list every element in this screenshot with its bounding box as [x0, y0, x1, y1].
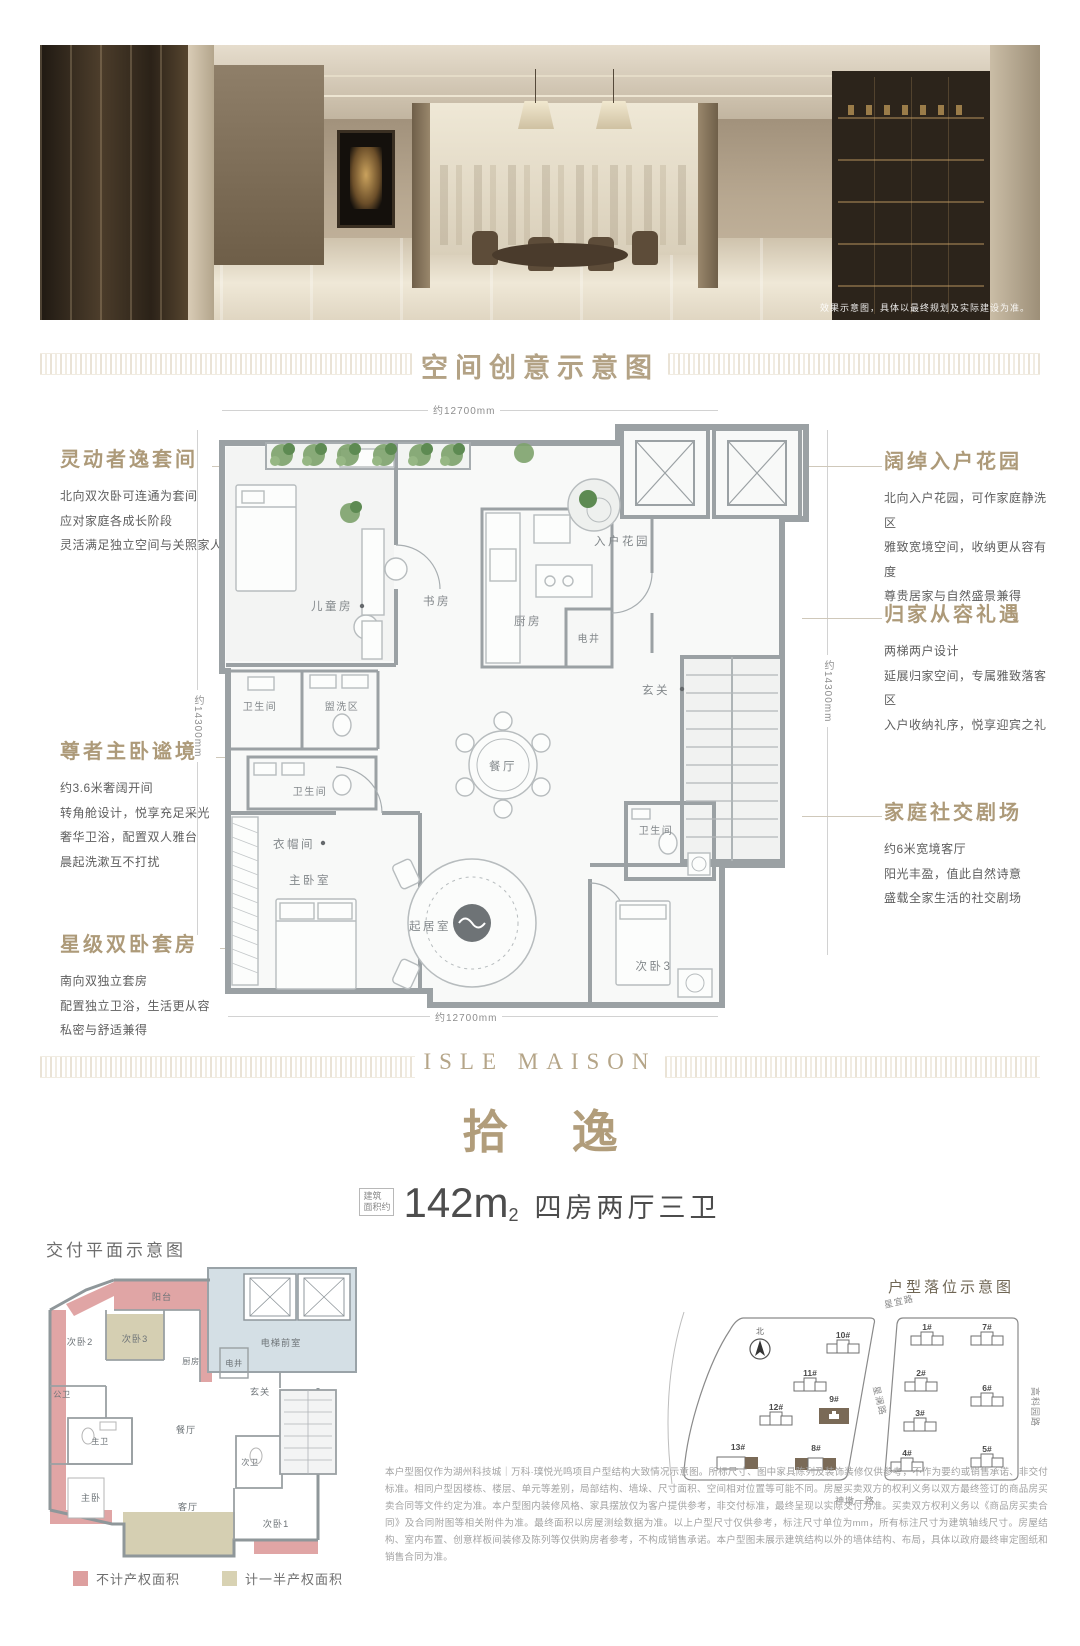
room-label-bath1: 卫生间 [243, 700, 278, 713]
dining-chair [472, 231, 498, 265]
room-label-foyer: 玄关 [642, 683, 670, 697]
annotation-homecoming: 归家从容礼遇 两梯两户设计 延展归家空间，专属雅致落客区 入户收纳礼序，悦享迎宾… [884, 598, 1054, 737]
svg-text:6#: 6# [982, 1383, 992, 1393]
d-label-bed1: 次卧1 [263, 1518, 290, 1529]
delivery-legend: 不计产权面积 计一半产权面积 [73, 1569, 343, 1588]
svg-text:2#: 2# [916, 1368, 926, 1378]
road-right: 高科园路 [1030, 1387, 1041, 1427]
disclaimer: 本户型图仅作为湖州科技城｜万科·璞悦光鸣项目户型结构大致情况示意图。所标尺寸、图… [385, 1464, 1048, 1567]
d-label-foyer: 玄关 [250, 1386, 270, 1397]
room-label-cloak: 衣帽间 [273, 837, 315, 851]
room-label-bath2: 卫生间 [293, 785, 328, 798]
dining-table [492, 243, 628, 267]
room-label-master: 主卧室 [289, 873, 331, 887]
d-label-shaft: 电井 [225, 1358, 242, 1368]
dining-chair [632, 231, 658, 265]
photo-artwork [340, 133, 392, 225]
room-label-bed3: 次卧3 [636, 959, 673, 973]
delivery-plan: 阳台 次卧2 次卧3 厨房 电井 电梯前室 玄关 公卫 主卫 餐厅 主卧 客厅 … [28, 1258, 363, 1563]
d-label-kitchen: 厨房 [182, 1356, 199, 1366]
annotation-entry-garden: 阔绰入户花园 北向入户花园，可作家庭静洗区 雅致宽境空间，收纳更从容有度 尊贵居… [884, 445, 1054, 609]
svg-text:4#: 4# [902, 1448, 912, 1458]
west-road [668, 1312, 684, 1484]
legend-swatch-tan [222, 1571, 237, 1586]
room-label-dining: 餐厅 [489, 759, 517, 773]
svg-text:8#: 8# [811, 1443, 821, 1453]
photo-caption: 效果示意图，具体以最终规划及实际建设为准。 [820, 301, 1030, 314]
d-label-master: 主卧 [81, 1492, 101, 1503]
north-arrow-icon: 北 [750, 1327, 770, 1359]
svg-text:7#: 7# [982, 1322, 992, 1332]
room-label-study: 书房 [423, 595, 451, 608]
d-label-bed2: 次卧2 [67, 1336, 94, 1347]
photo-wood-panel-wall [40, 45, 188, 320]
room-label-children: 儿童房 [311, 599, 353, 613]
legend-swatch-pink [73, 1571, 88, 1586]
room-label-bath3: 卫生间 [639, 824, 674, 837]
room-label-living: 起居室 [409, 919, 451, 933]
road-top: 星宜路 [883, 1292, 915, 1309]
d-label-bed3: 次卧3 [122, 1333, 149, 1344]
svg-text:10#: 10# [836, 1330, 850, 1340]
d-label-master-bath: 主卫 [91, 1436, 108, 1446]
svg-text:13#: 13# [731, 1442, 745, 1452]
hero-photo: 效果示意图，具体以最终规划及实际建设为准。 [40, 45, 1040, 320]
area-value: 142m [403, 1182, 508, 1224]
d-label-living: 客厅 [178, 1501, 198, 1512]
legend-item: 不计产权面积 [73, 1569, 180, 1588]
svg-text:北: 北 [756, 1327, 764, 1336]
unit-name: 拾 逸 [0, 1096, 1080, 1162]
building-9-highlight [819, 1408, 849, 1424]
room-label-shaft: 电井 [578, 632, 601, 645]
main-floorplan: 儿童房 书房 厨房 电井 入户花园 玄关 卫生间 盥洗区 卫生间 餐厅 卫生间 … [190, 413, 835, 1025]
area-prefix: 建筑 面积约 [359, 1188, 394, 1217]
svg-text:1#: 1# [922, 1322, 932, 1332]
svg-text:3#: 3# [915, 1408, 925, 1418]
svg-text:5#: 5# [982, 1444, 992, 1454]
d-label-dining: 餐厅 [176, 1424, 196, 1435]
svg-text:12#: 12# [769, 1402, 783, 1412]
d-label-sec-bath: 次卫 [241, 1457, 258, 1467]
svg-text:9#: 9# [829, 1394, 839, 1404]
room-label-wash: 盥洗区 [325, 701, 360, 713]
svg-text:11#: 11# [803, 1368, 817, 1378]
area-sup: 2 [509, 1206, 519, 1224]
brochure-page: 效果示意图，具体以最终规划及实际建设为准。 空间创意示意图 约12700mm 约… [0, 0, 1080, 1646]
d-label-pub-bath: 公卫 [53, 1390, 70, 1399]
d-label-lobby: 电梯前室 [261, 1337, 302, 1348]
legend-item: 计一半产权面积 [222, 1569, 343, 1588]
road-middle: 星澜路 [871, 1385, 889, 1417]
annotation-social-living: 家庭社交剧场 约6米宽境客厅 阳光丰盈，值此自然诗意 盛载全家生活的社交剧场 [884, 796, 1054, 911]
area-row: 建筑 面积约 142m2 四房两厅三卫 [0, 1182, 1080, 1224]
room-label-kitchen: 厨房 [514, 615, 542, 628]
room-label-garden: 入户花园 [594, 534, 650, 548]
d-label-balcony: 阳台 [152, 1291, 172, 1302]
unit-layout: 四房两厅三卫 [535, 1193, 721, 1224]
brand-logotype: ISLE MAISON [0, 1049, 1080, 1075]
section-title: 空间创意示意图 [0, 346, 1080, 385]
